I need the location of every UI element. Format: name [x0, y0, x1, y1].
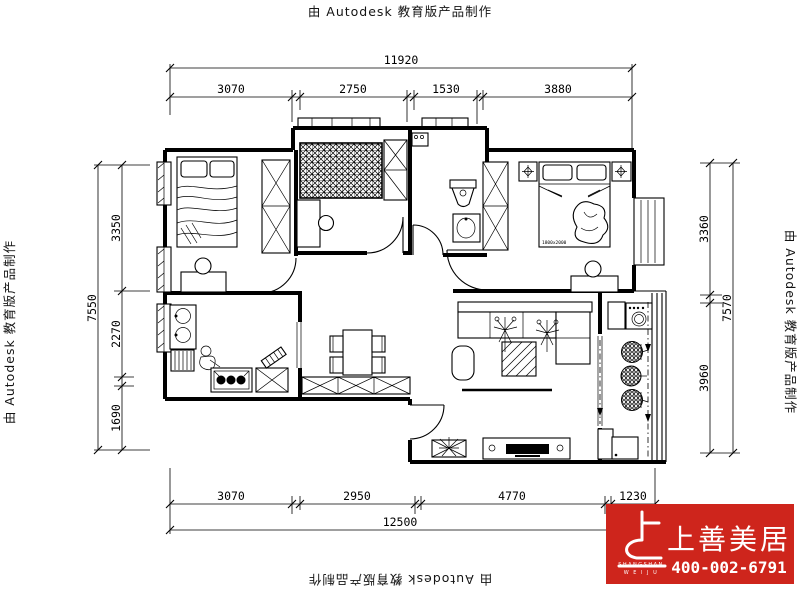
bathroom-fixtures — [412, 133, 480, 242]
dim-right-seg2: 3960 — [697, 364, 711, 392]
watermark-top: 由 Autodesk 教育版产品制作 — [308, 4, 492, 19]
gas-stove-symbol — [211, 368, 252, 392]
tatami-bed-symbol — [300, 143, 382, 198]
toilet-symbol — [450, 180, 476, 207]
washbasin-symbol — [453, 214, 480, 242]
watermark-right: 由 Autodesk 教育版产品制作 — [783, 230, 798, 414]
window-bedroom-left-2 — [157, 247, 171, 292]
sink-counter-symbol — [170, 305, 196, 349]
sliding-door-kitchen — [297, 322, 301, 368]
water-heater-symbol — [412, 133, 428, 146]
dining-furniture — [302, 330, 410, 394]
master-bedroom-furniture: 1800x2000 — [483, 162, 631, 292]
floor-plan-canvas: 由 Autodesk 教育版产品制作 由 Autodesk 教育版产品制作 由 … — [0, 0, 800, 600]
watermark-bottom: 由 Autodesk 教育版产品制作 — [308, 572, 492, 587]
door-arc-bedroom-middle — [367, 217, 403, 253]
person-symbol — [200, 346, 220, 370]
dim-left-seg3: 1690 — [109, 404, 123, 432]
fridge-symbol — [171, 350, 194, 371]
bed-size-label: 1800x2000 — [542, 240, 567, 246]
dim-bottom-seg1: 3070 — [217, 489, 245, 503]
dim-top-total: 11920 — [384, 53, 419, 67]
dim-left-seg2: 2270 — [109, 320, 123, 348]
sideboard-symbol — [302, 377, 410, 394]
logo-latin-line1: SHANGSHAN — [618, 562, 664, 568]
kitchen-fixtures — [170, 305, 288, 392]
counter-symbol — [256, 368, 288, 392]
watermark-left: 由 Autodesk 教育版产品制作 — [2, 240, 17, 424]
bedroom-left-furniture — [177, 157, 290, 292]
dim-top-seg1: 3070 — [217, 82, 245, 96]
double-bed-symbol: 1800x2000 — [539, 162, 610, 247]
cabinet-symbol — [598, 429, 638, 459]
dresser-and-stool-symbol — [571, 261, 618, 292]
floorplan-page: 由 Autodesk 教育版产品制作 由 Autodesk 教育版产品制作 由 … — [0, 0, 800, 600]
bay-window-master — [634, 198, 664, 265]
window-bedroom-left-1 — [157, 162, 171, 205]
nightstand-symbol — [519, 162, 537, 181]
dim-bottom-seg2: 2950 — [343, 489, 371, 503]
door-arc-entry — [410, 405, 444, 439]
dim-right-total: 7570 — [720, 294, 734, 322]
wardrobe-symbol — [483, 162, 508, 250]
dim-left-seg1: 3350 — [109, 214, 123, 242]
dining-table-symbol — [330, 330, 385, 375]
dim-bottom-seg3: 4770 — [498, 489, 526, 503]
potted-plant-symbol — [621, 366, 647, 386]
dim-top-seg3: 1530 — [432, 82, 460, 96]
brand-logo: SHANGSHAN W E I J U 上善美居 400-002-6791 — [606, 504, 794, 584]
desk-and-stool-symbol — [297, 200, 334, 247]
window-kitchen — [157, 304, 171, 352]
potted-plant-symbol — [622, 342, 649, 363]
wardrobe-symbol — [262, 160, 290, 253]
desk-and-stool-symbol — [181, 258, 226, 292]
side-table-symbol — [452, 346, 474, 380]
dim-left-total: 7550 — [85, 294, 99, 322]
double-bed-symbol — [177, 157, 237, 247]
bedroom-middle-furniture — [297, 140, 407, 247]
coffee-table-symbol — [502, 342, 536, 376]
logo-phone-number: 400-002-6791 — [671, 558, 787, 577]
watermarks: 由 Autodesk 教育版产品制作 由 Autodesk 教育版产品制作 由 … — [2, 4, 798, 587]
dim-bottom-total: 12500 — [383, 515, 418, 529]
door-arc-bathroom — [413, 225, 443, 255]
dim-top-seg2: 2750 — [339, 82, 367, 96]
cabinet-symbol — [608, 302, 625, 329]
dim-bottom-seg4: 1230 — [619, 489, 647, 503]
wardrobe-symbol — [384, 140, 407, 200]
logo-latin-line2: W E I J U — [624, 570, 659, 576]
planter-box-symbol — [432, 437, 466, 457]
door-arc-bedroom-left — [261, 258, 296, 293]
living-room-furniture — [432, 302, 638, 459]
cutting-board-symbol — [261, 347, 286, 368]
tv-cabinet-symbol — [483, 438, 570, 459]
potted-plant-symbol — [622, 390, 649, 411]
dim-right-seg1: 3360 — [697, 215, 711, 243]
nightstand-symbol — [612, 162, 631, 181]
dim-top-seg4: 3880 — [544, 82, 572, 96]
logo-brand-name: 上善美居 — [667, 523, 791, 556]
